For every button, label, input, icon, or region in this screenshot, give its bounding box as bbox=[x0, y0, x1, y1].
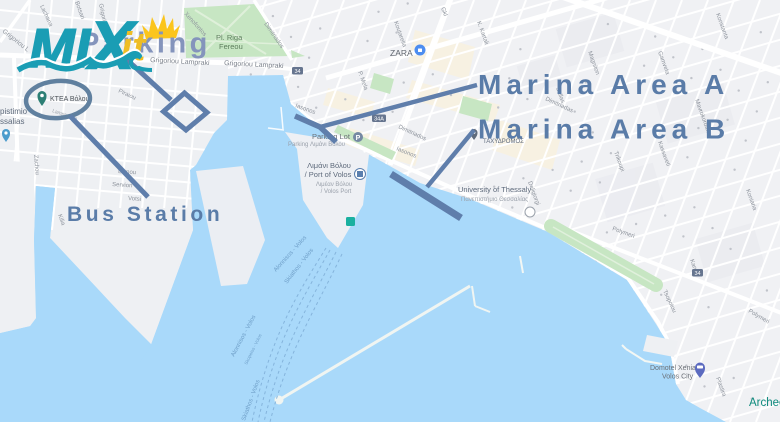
svg-text:Λιμέαν Βόλου: Λιμέαν Βόλου bbox=[316, 181, 352, 188]
svg-text:ZARA: ZARA bbox=[390, 48, 413, 58]
svg-text:34A: 34A bbox=[374, 117, 384, 123]
svg-text:Archeologic: Archeologic bbox=[749, 397, 780, 409]
svg-text:Bus Station: Bus Station bbox=[67, 203, 223, 226]
svg-text:Marina Area A: Marina Area A bbox=[478, 69, 729, 100]
svg-text:Votsi: Votsi bbox=[128, 196, 141, 203]
svg-text:Domotel Xenia: Domotel Xenia bbox=[650, 365, 696, 372]
svg-text:University of Thessaly: University of Thessaly bbox=[458, 185, 531, 194]
svg-text:Marina Area B: Marina Area B bbox=[478, 114, 730, 145]
svg-text:Λιμάνι Βόλου: Λιμάνι Βόλου bbox=[307, 161, 351, 170]
svg-text:34: 34 bbox=[294, 69, 300, 75]
svg-text:/ Volos Port: / Volos Port bbox=[321, 189, 352, 195]
svg-text:KTEA Βόλου: KTEA Βόλου bbox=[50, 95, 90, 103]
svg-text:it: it bbox=[121, 25, 147, 69]
svg-text:P: P bbox=[356, 135, 361, 142]
svg-text:Volos City: Volos City bbox=[662, 374, 694, 381]
svg-text:pistimio: pistimio bbox=[0, 107, 28, 116]
svg-text:Πανεπιστήμιο Θεσσαλίας: Πανεπιστήμιο Θεσσαλίας bbox=[461, 196, 528, 203]
svg-text:ssalias: ssalias bbox=[0, 117, 24, 126]
svg-text:Fereou: Fereou bbox=[219, 42, 243, 51]
svg-text:Parking Λιμάνι Βόλου: Parking Λιμάνι Βόλου bbox=[288, 141, 345, 148]
svg-text:/ Port of Volos: / Port of Volos bbox=[305, 170, 352, 179]
svg-text:34: 34 bbox=[694, 271, 700, 277]
svg-text:Pl. Riga: Pl. Riga bbox=[216, 33, 243, 42]
